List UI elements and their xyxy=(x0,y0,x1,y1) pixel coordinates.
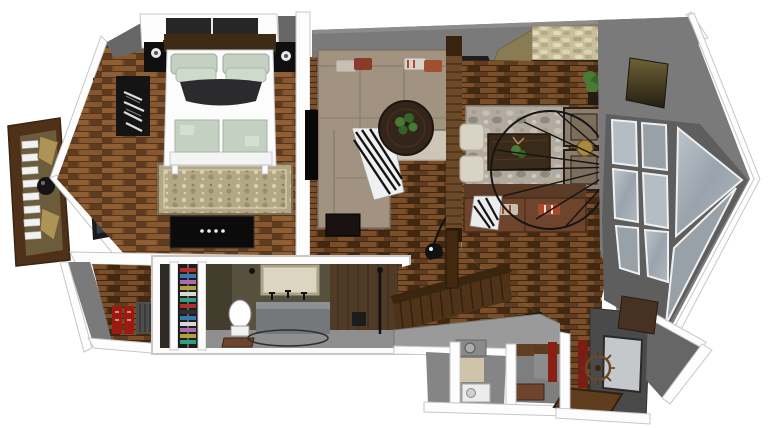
sofa-pillow-cream xyxy=(336,60,356,72)
entry-art-panel xyxy=(618,296,658,334)
wall-tv xyxy=(305,110,318,180)
media-console xyxy=(170,216,254,248)
cream-chair-top xyxy=(460,124,484,150)
shoe-rack xyxy=(178,264,198,348)
wreath xyxy=(581,351,615,385)
bath-dark-frame xyxy=(352,312,366,326)
sofa-pillow-darkred xyxy=(354,58,372,70)
bathroom-left-wall xyxy=(206,264,232,332)
balcony xyxy=(8,118,70,266)
closet-dark-cubby xyxy=(160,264,170,348)
closet-post-2 xyxy=(198,262,206,350)
utility-base-trim xyxy=(424,402,566,416)
bed-headboard xyxy=(164,34,276,52)
newel-post xyxy=(446,230,458,288)
closet-post-1 xyxy=(170,262,178,350)
round-coffee-table xyxy=(379,101,433,155)
bathroom-section xyxy=(152,256,410,354)
dining-table xyxy=(488,134,550,170)
washer xyxy=(462,384,490,402)
red-curtain-left xyxy=(548,342,557,382)
floorplan-canvas xyxy=(0,0,768,428)
utility-post-2 xyxy=(506,344,516,406)
clothes-valet-bench xyxy=(116,76,150,136)
bathroom-mirror xyxy=(262,266,318,294)
sofa-pillow-rust xyxy=(424,60,442,72)
living-room xyxy=(305,36,462,268)
bath-sconce xyxy=(249,268,255,274)
dark-cabinet xyxy=(326,214,360,236)
fireplace-stone-face xyxy=(532,26,608,60)
utility-post-1 xyxy=(450,342,460,406)
bed-throw-blanket xyxy=(180,79,262,106)
bay-art-panel xyxy=(626,58,668,108)
bedroom xyxy=(57,14,302,256)
floorplan-render xyxy=(0,0,768,428)
entry-post xyxy=(560,332,570,416)
wood-floor-mat xyxy=(514,384,544,400)
cream-chair-bottom xyxy=(460,156,484,182)
